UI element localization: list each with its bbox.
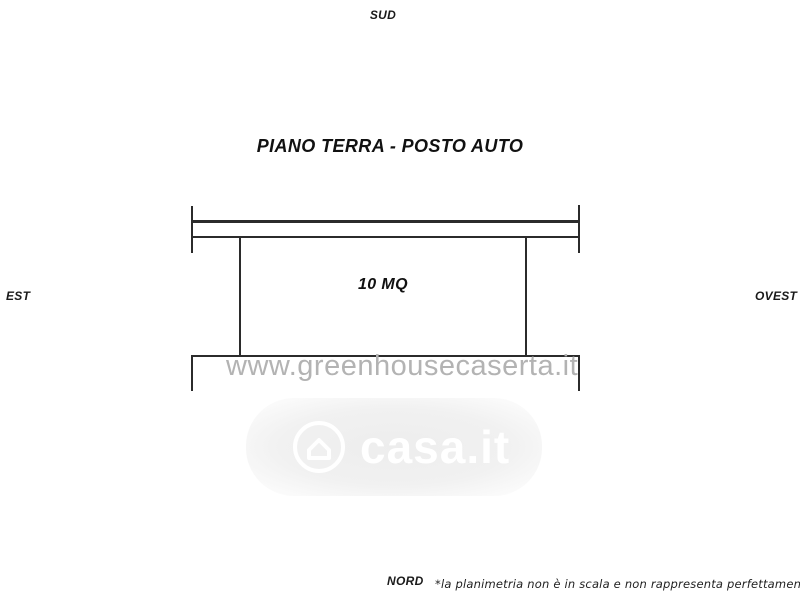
agency-watermark: www.greenhousecaserta.it <box>226 350 578 383</box>
plan-stall-right-wall <box>525 237 527 357</box>
compass-label-ovest: OVEST <box>755 289 797 303</box>
page-title: PIANO TERRA - POSTO AUTO <box>0 136 780 157</box>
plan-stall-left-wall <box>239 237 241 357</box>
house-icon <box>292 420 346 474</box>
plan-leg-bottom-right <box>578 355 580 391</box>
portal-watermark-text: casa.it <box>360 420 510 474</box>
plan-leg-bottom-left <box>191 355 193 391</box>
plan-tick-left <box>191 206 193 253</box>
compass-label-sud: SUD <box>0 8 766 22</box>
stall-area-label: 10 MQ <box>240 276 526 294</box>
disclaimer-note: *la planimetria non è in scala e non rap… <box>435 577 800 591</box>
portal-watermark-badge: casa.it <box>246 398 542 496</box>
compass-label-est: EST <box>6 289 30 303</box>
compass-label-nord: NORD <box>387 574 424 588</box>
plan-wall-top-outer <box>192 220 580 223</box>
plan-wall-top-inner <box>192 236 580 238</box>
plan-tick-right <box>578 205 580 253</box>
